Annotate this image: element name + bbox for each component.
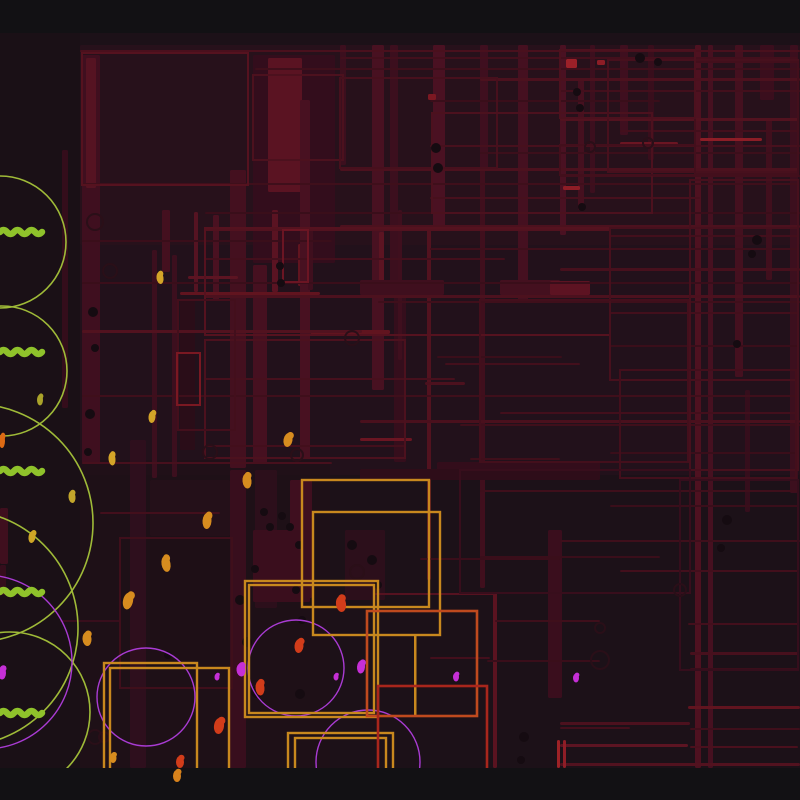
- dark-dot: [517, 756, 525, 764]
- texture-rect: [460, 424, 800, 426]
- texture-rect: [690, 652, 798, 655]
- texture-rect: [566, 59, 577, 68]
- texture-rect: [500, 412, 798, 414]
- amber-line: [414, 635, 417, 715]
- dark-dot: [277, 279, 285, 287]
- dark-dot: [573, 88, 581, 96]
- generative-art-svg: [0, 0, 800, 800]
- texture-rect: [563, 186, 580, 190]
- texture-rect: [690, 728, 800, 730]
- texture-rect: [180, 292, 320, 295]
- texture-rect: [480, 490, 798, 492]
- texture-rect: [487, 660, 600, 662]
- dark-dot: [91, 344, 99, 352]
- blob-lobe: [1, 433, 6, 440]
- dark-dot: [752, 235, 762, 245]
- dark-dot: [519, 732, 529, 742]
- band-top: [0, 0, 800, 33]
- texture-rect: [560, 90, 800, 92]
- texture-rect: [480, 45, 488, 169]
- texture-rect: [560, 744, 688, 747]
- texture-rect: [557, 740, 560, 768]
- band-bottom: [0, 768, 800, 800]
- texture-rect: [82, 240, 332, 242]
- dark-dot: [347, 540, 357, 550]
- texture-rect: [610, 312, 798, 314]
- texture-rect: [230, 170, 246, 468]
- texture-rect: [430, 248, 798, 250]
- dark-dot: [367, 555, 377, 565]
- texture-rect: [620, 130, 798, 132]
- texture-rect: [690, 746, 798, 748]
- artwork-canvas: [0, 0, 800, 800]
- dark-dot: [722, 515, 732, 525]
- blob-lobe: [175, 769, 181, 775]
- dark-dot: [635, 53, 645, 63]
- dark-dot: [286, 523, 294, 531]
- paint-squiggle: [0, 230, 42, 234]
- texture-rect: [372, 45, 384, 390]
- dark-dot: [295, 689, 305, 699]
- texture-rect: [100, 512, 220, 514]
- texture-rect: [433, 45, 445, 231]
- dark-dot: [654, 58, 662, 66]
- texture-rect: [688, 706, 800, 709]
- blob-lobe: [216, 673, 220, 677]
- texture-rect: [610, 235, 798, 237]
- texture-rect: [470, 458, 560, 460]
- texture-rect: [480, 556, 660, 558]
- texture-rect: [152, 250, 157, 478]
- dark-dot: [251, 565, 259, 573]
- texture-rect: [130, 440, 146, 768]
- texture-rect: [560, 727, 630, 729]
- paint-squiggle: [0, 350, 42, 354]
- texture-rect: [430, 197, 700, 199]
- texture-rect: [255, 68, 800, 70]
- texture-rect: [86, 58, 96, 188]
- texture-rect: [445, 363, 580, 365]
- texture-rect: [700, 138, 762, 141]
- texture-rect: [272, 210, 278, 292]
- texture-rect: [493, 593, 497, 768]
- texture-rect: [188, 276, 238, 279]
- dark-dot: [433, 163, 443, 173]
- dark-dot: [88, 307, 98, 317]
- texture-rect: [735, 45, 743, 377]
- dark-dot: [717, 544, 725, 552]
- blob-lobe: [0, 665, 6, 672]
- blob-lobe: [39, 393, 44, 399]
- dark-dot: [733, 340, 741, 348]
- paint-squiggle: [0, 590, 42, 594]
- dark-dot: [235, 595, 245, 605]
- texture-rect: [425, 382, 465, 385]
- texture-rect: [610, 505, 798, 507]
- texture-rect: [428, 94, 436, 100]
- texture-rect: [378, 301, 800, 303]
- blob-lobe: [455, 672, 460, 677]
- texture-rect: [150, 538, 230, 660]
- texture-rect: [560, 268, 800, 271]
- texture-rect: [518, 45, 528, 301]
- dark-dot: [431, 143, 441, 153]
- blob-lobe: [335, 673, 339, 677]
- blob-lobe: [111, 752, 116, 757]
- texture-rect: [688, 623, 798, 625]
- texture-rect: [766, 120, 772, 280]
- texture-rect: [82, 462, 332, 464]
- texture-rect: [60, 620, 120, 622]
- texture-rect: [0, 508, 8, 564]
- texture-rect: [340, 57, 798, 59]
- texture-rect: [82, 282, 800, 284]
- dark-dot: [576, 104, 584, 112]
- dark-dot: [242, 637, 252, 647]
- texture-rect: [205, 445, 405, 447]
- texture-rect: [560, 722, 690, 725]
- texture-rect: [480, 152, 800, 154]
- texture-rect: [563, 740, 566, 768]
- blob-lobe: [178, 755, 184, 761]
- texture-rect: [205, 295, 800, 298]
- texture-rect: [360, 420, 800, 423]
- dark-dot: [260, 508, 268, 516]
- texture-rect: [495, 620, 600, 622]
- texture-rect: [610, 452, 798, 454]
- dark-dot: [84, 448, 92, 456]
- texture-rect: [480, 78, 800, 81]
- texture-rect: [82, 330, 362, 333]
- texture-rect: [268, 58, 302, 192]
- texture-rect: [430, 100, 660, 102]
- dark-dot: [748, 250, 756, 258]
- paint-squiggle: [0, 711, 42, 715]
- dark-dot: [578, 203, 586, 211]
- blob-lobe: [575, 673, 580, 678]
- texture-rect: [180, 300, 195, 450]
- texture-rect: [560, 763, 800, 766]
- dark-dot: [85, 409, 95, 419]
- dark-dot: [292, 586, 300, 594]
- texture-rect: [745, 390, 750, 512]
- texture-rect: [437, 356, 562, 358]
- texture-rect: [205, 258, 505, 260]
- texture-rect: [548, 530, 562, 698]
- dark-dot: [278, 512, 286, 520]
- texture-rect: [610, 345, 798, 347]
- texture-rect: [150, 480, 230, 536]
- texture-rect: [205, 378, 455, 380]
- dark-dot: [266, 523, 274, 531]
- texture-rect: [620, 570, 798, 572]
- texture-rect: [430, 657, 490, 659]
- paint-squiggle: [0, 469, 42, 473]
- texture-rect: [194, 212, 198, 292]
- texture-rect: [597, 60, 605, 65]
- dark-dot: [276, 262, 284, 270]
